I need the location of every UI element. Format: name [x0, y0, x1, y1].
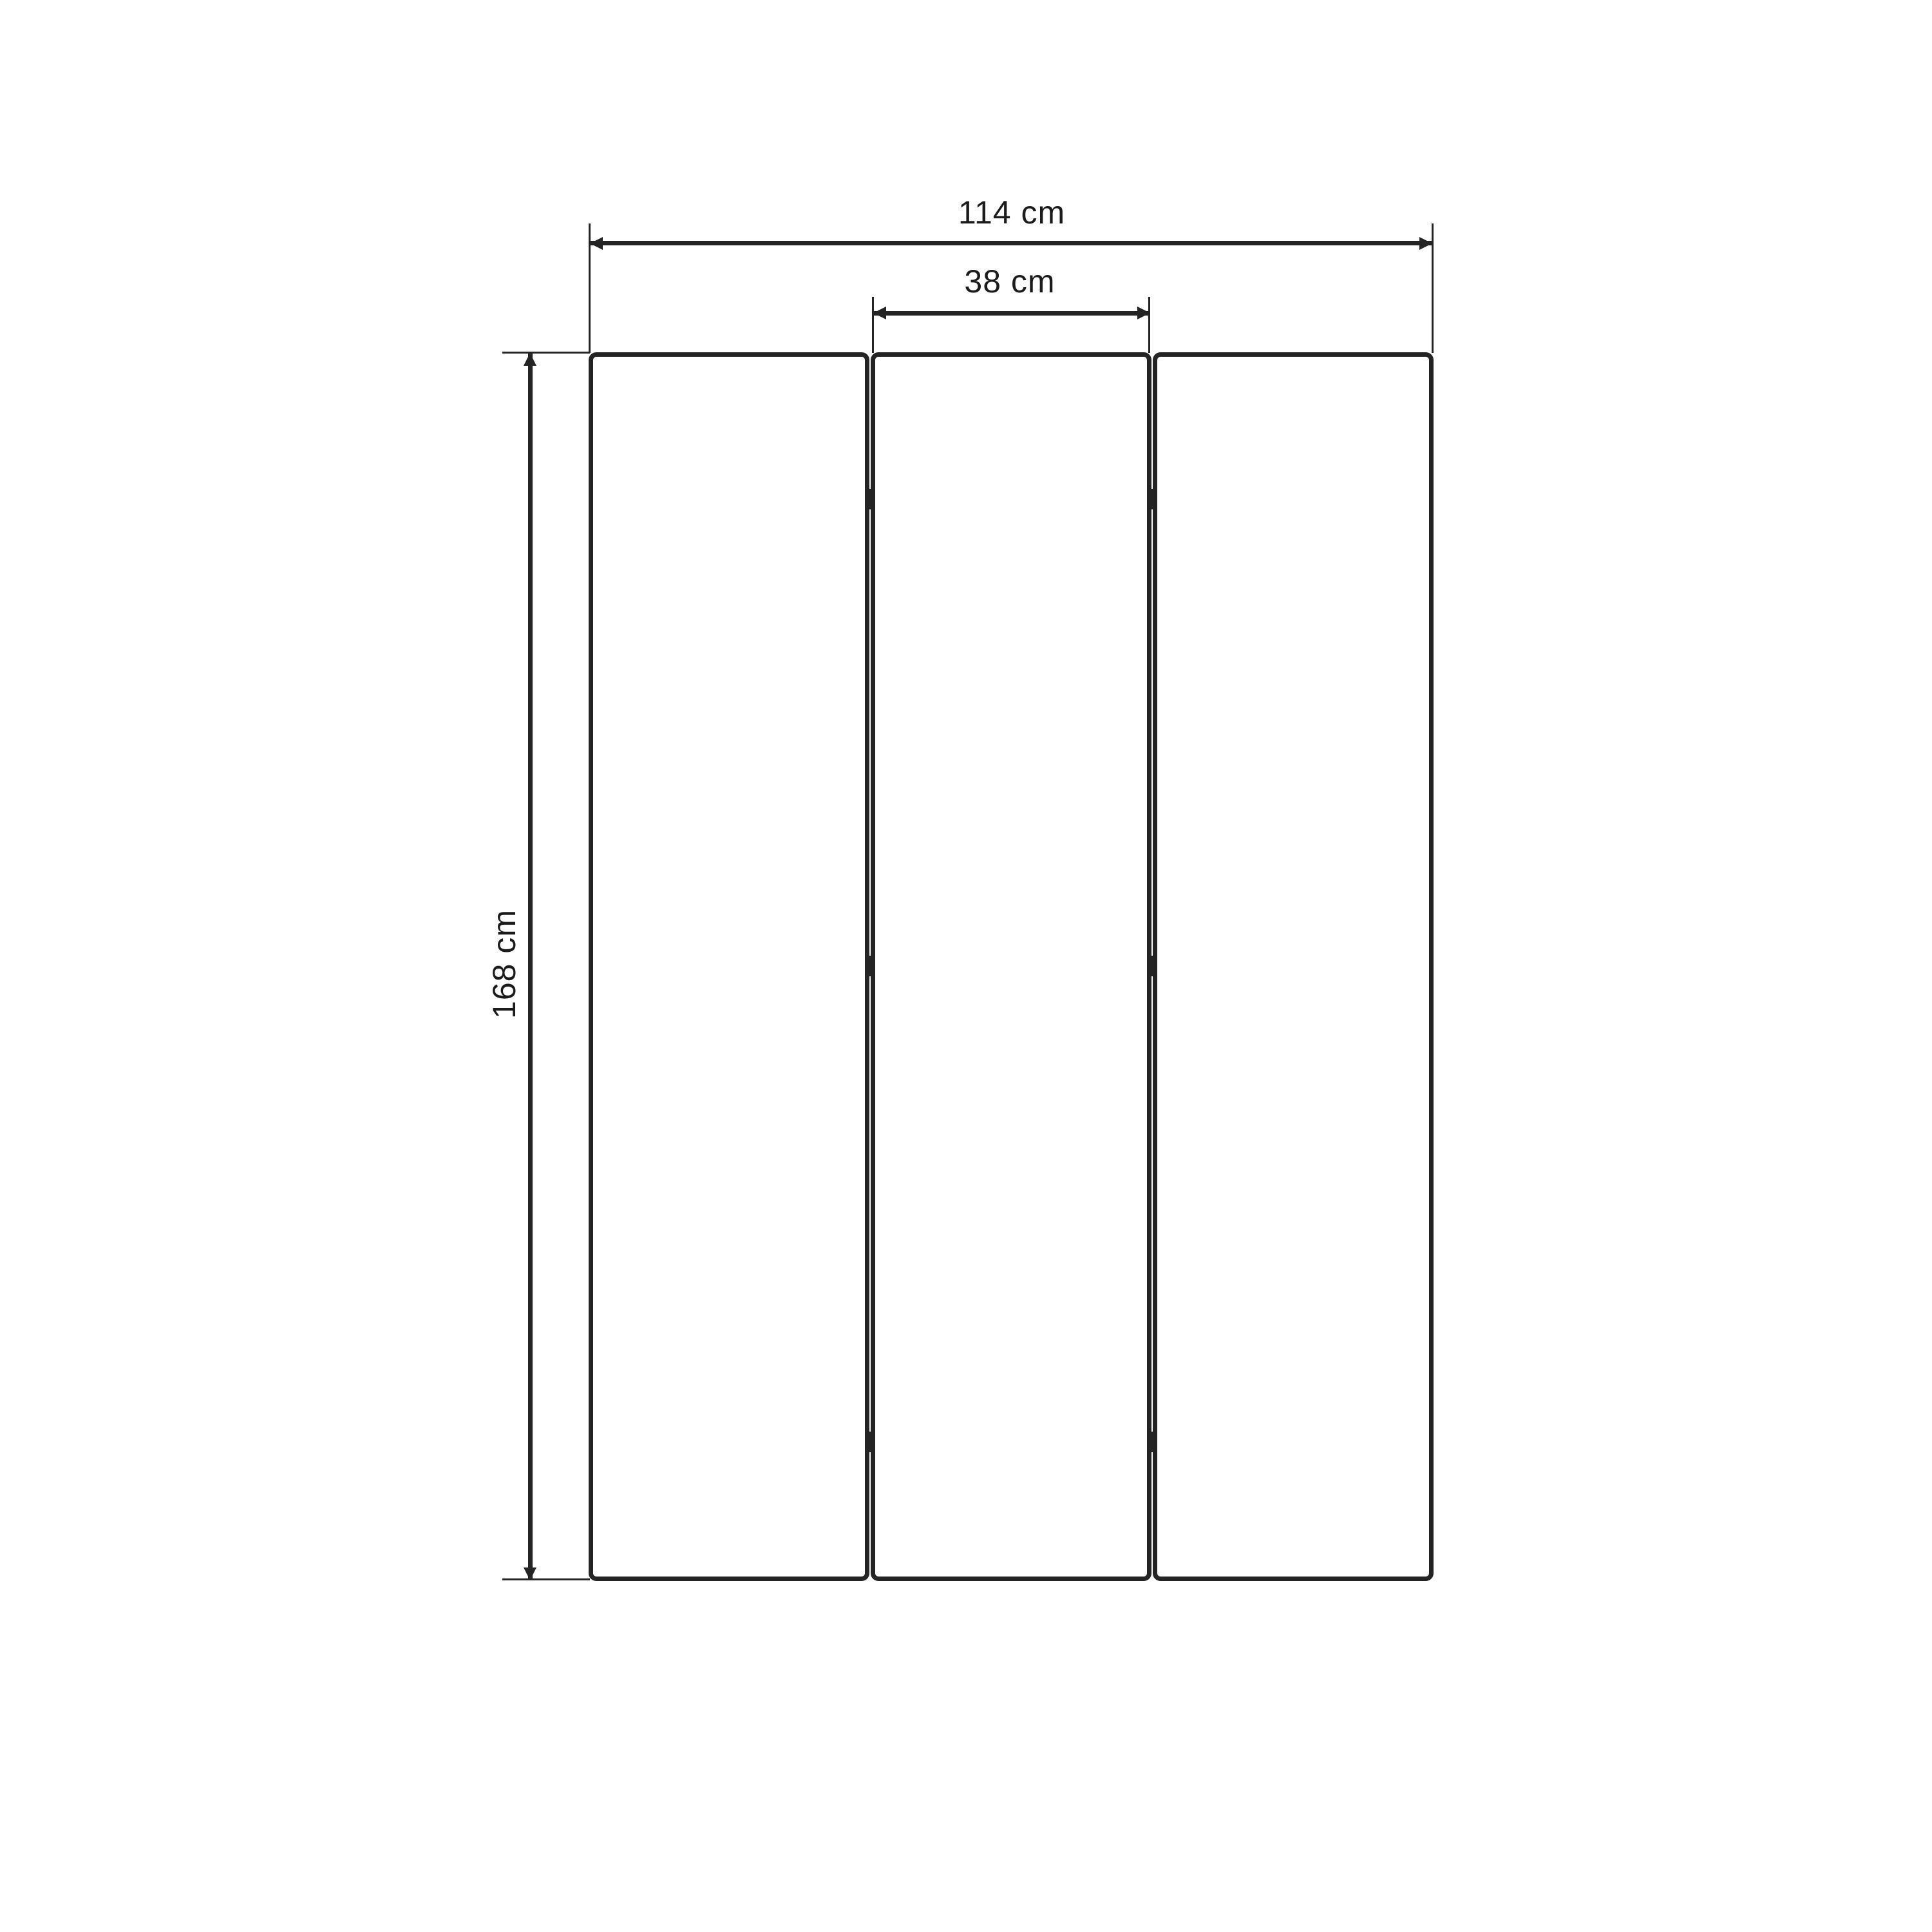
dimension-drawing: 114 cm 38 cm 168 cm — [0, 0, 1932, 1932]
arrowhead-left-icon — [873, 307, 886, 319]
panel-middle — [871, 352, 1151, 1581]
hinge-right-middle — [1147, 956, 1157, 976]
arrowhead-right-icon — [1419, 237, 1432, 250]
hinge-left-bottom — [865, 1432, 875, 1452]
overall-width-dimension-line — [590, 241, 1432, 245]
overall-height-label: 168 cm — [488, 909, 520, 1019]
panel-width-extension-line-left — [872, 297, 874, 353]
hinge-right-bottom — [1147, 1432, 1157, 1452]
hinge-left-top — [865, 489, 875, 509]
overall-width-label: 114 cm — [958, 196, 1065, 229]
overall-height-dimension-line — [528, 354, 533, 1580]
hinge-left-middle — [865, 956, 875, 976]
arrowhead-left-icon — [590, 237, 603, 250]
panel-right — [1153, 352, 1434, 1581]
panel-left — [589, 352, 869, 1581]
hinge-right-top — [1147, 489, 1157, 509]
panel-width-dimension-line — [873, 311, 1150, 316]
overall-height-extension-line-bottom — [502, 1578, 590, 1580]
panel-width-extension-line-right — [1148, 297, 1150, 353]
overall-height-extension-line-top — [502, 352, 590, 354]
arrowhead-up-icon — [524, 353, 536, 366]
arrowhead-right-icon — [1137, 307, 1150, 319]
panel-width-label: 38 cm — [964, 265, 1055, 298]
arrowhead-down-icon — [524, 1567, 536, 1580]
